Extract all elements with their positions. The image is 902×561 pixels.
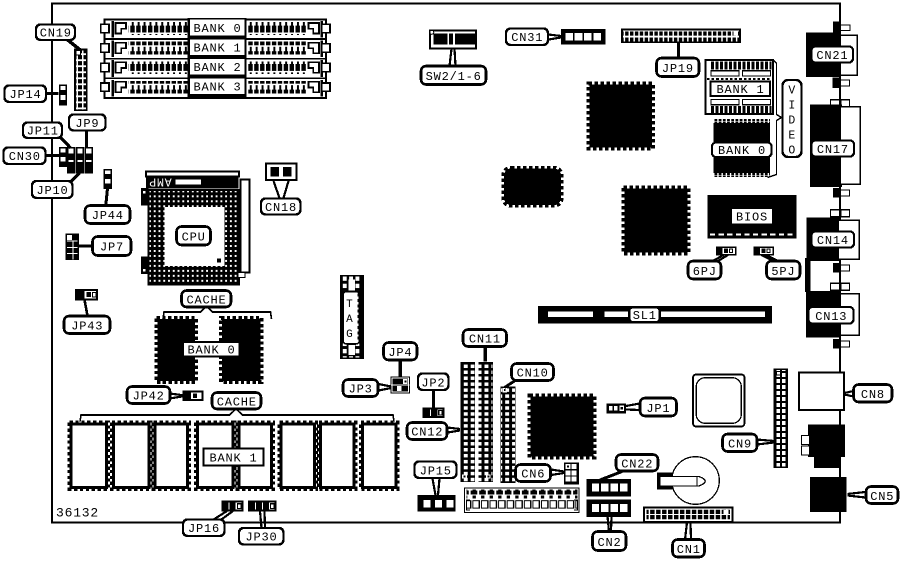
svg-text:BANK 1: BANK 1 — [209, 452, 257, 466]
svg-text:36132: 36132 — [56, 506, 99, 521]
svg-text:BANK 1: BANK 1 — [716, 83, 764, 97]
svg-text:CN9: CN9 — [728, 437, 752, 451]
svg-text:CN17: CN17 — [817, 143, 849, 157]
svg-text:I: I — [788, 100, 796, 113]
svg-text:CPU: CPU — [182, 231, 206, 245]
svg-text:CN21: CN21 — [816, 49, 848, 63]
svg-text:BANK 0: BANK 0 — [718, 144, 766, 158]
svg-text:BANK 2: BANK 2 — [193, 61, 241, 75]
svg-text:CN11: CN11 — [469, 333, 501, 347]
svg-text:JP42: JP42 — [133, 390, 165, 404]
svg-text:CN14: CN14 — [817, 234, 849, 248]
svg-text:BANK 3: BANK 3 — [193, 81, 241, 95]
svg-text:JP4: JP4 — [388, 346, 412, 360]
svg-text:JP3: JP3 — [349, 383, 373, 397]
svg-text:JP9: JP9 — [75, 117, 99, 131]
svg-text:CN22: CN22 — [621, 457, 653, 471]
svg-text:JP7: JP7 — [100, 241, 124, 255]
svg-text:CN18: CN18 — [265, 201, 297, 215]
svg-text:BANK 0: BANK 0 — [193, 22, 241, 36]
svg-text:CN31: CN31 — [511, 31, 543, 45]
svg-text:D: D — [788, 115, 796, 128]
svg-text:CN2: CN2 — [597, 536, 621, 550]
svg-text:CN13: CN13 — [815, 310, 847, 324]
svg-text:CACHE: CACHE — [217, 395, 257, 409]
svg-text:A: A — [346, 314, 353, 326]
svg-text:CN1: CN1 — [677, 543, 701, 557]
svg-text:JP30: JP30 — [245, 531, 277, 545]
svg-text:CN30: CN30 — [9, 150, 41, 164]
svg-text:CN19: CN19 — [40, 27, 72, 41]
svg-text:T: T — [346, 299, 353, 311]
svg-text:CN5: CN5 — [870, 490, 894, 504]
svg-text:O: O — [788, 145, 796, 158]
svg-text:6PJ: 6PJ — [693, 265, 717, 279]
svg-text:JP44: JP44 — [92, 209, 124, 223]
svg-text:CN10: CN10 — [517, 367, 549, 381]
svg-text:BANK 0: BANK 0 — [187, 343, 235, 357]
svg-text:AMP: AMP — [148, 174, 171, 187]
svg-text:JP43: JP43 — [71, 319, 103, 333]
svg-text:JP14: JP14 — [9, 88, 41, 102]
svg-text:SL1: SL1 — [633, 309, 657, 323]
svg-text:JP16: JP16 — [188, 522, 220, 536]
svg-text:CN12: CN12 — [411, 426, 443, 440]
svg-text:5PJ: 5PJ — [771, 265, 795, 279]
svg-text:JP2: JP2 — [421, 376, 445, 390]
svg-text:SW2/1-6: SW2/1-6 — [426, 70, 482, 84]
svg-text:G: G — [346, 329, 353, 341]
svg-text:JP19: JP19 — [662, 62, 694, 76]
svg-text:CN6: CN6 — [521, 468, 545, 482]
svg-text:BANK 1: BANK 1 — [193, 41, 241, 55]
svg-text:V: V — [788, 85, 796, 98]
svg-text:JP10: JP10 — [36, 184, 68, 198]
svg-text:BIOS: BIOS — [736, 211, 768, 225]
svg-text:JP15: JP15 — [420, 464, 452, 478]
svg-text:JP11: JP11 — [27, 125, 59, 139]
svg-text:E: E — [788, 130, 796, 143]
svg-text:JP1: JP1 — [646, 402, 670, 416]
svg-text:CN8: CN8 — [861, 388, 885, 402]
